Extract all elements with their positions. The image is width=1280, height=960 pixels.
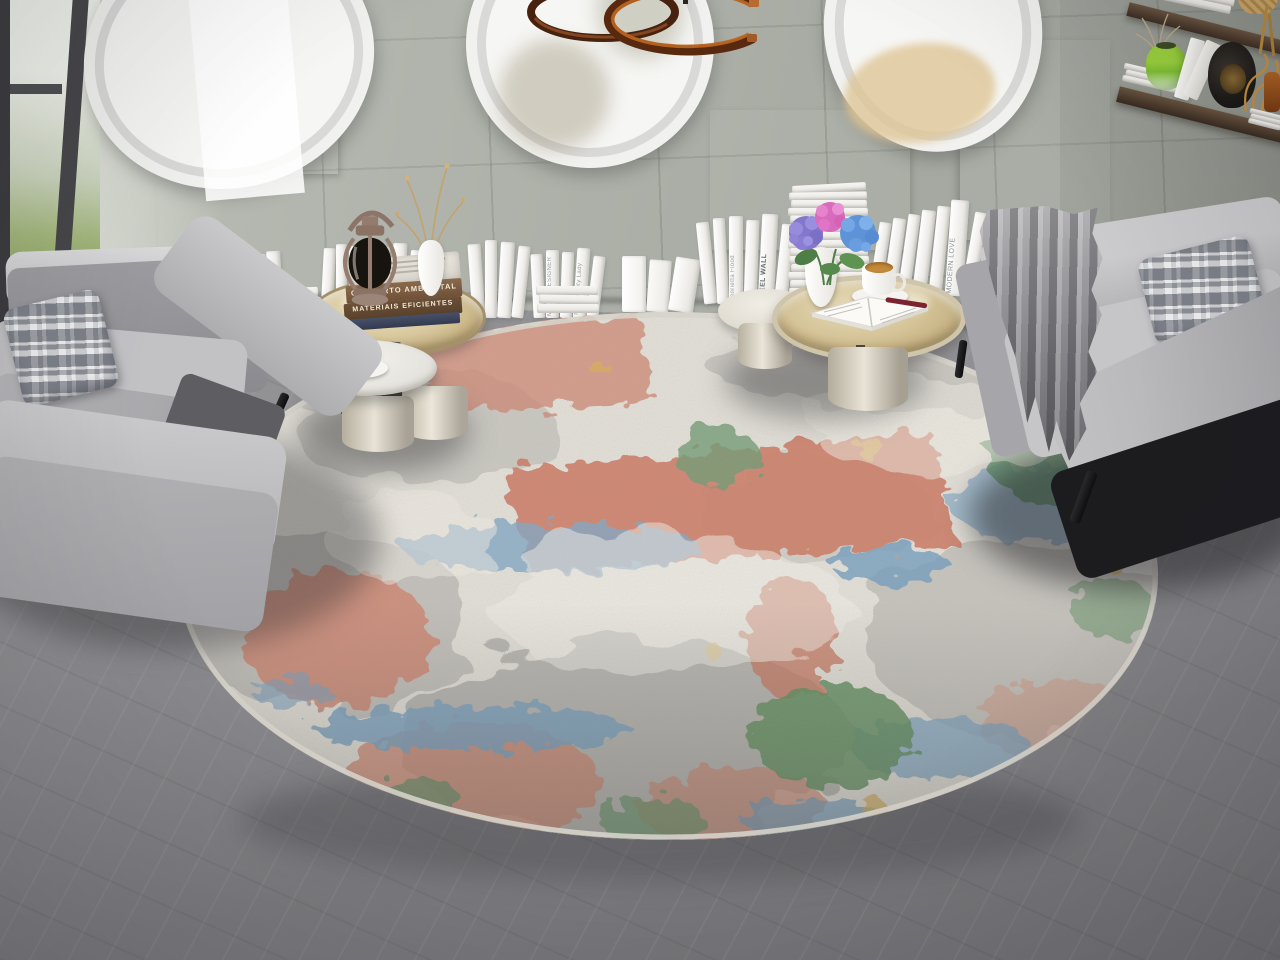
pendant-ring-walnut: [531, 0, 675, 38]
ring-pendant-light: [515, 0, 765, 64]
living-room-scene: FATALISM of YOURSELF Biological Prado Mo…: [0, 0, 1280, 960]
pendant-ring-copper-face: [613, 0, 751, 46]
sofa-leg: [954, 340, 967, 379]
teacup: [862, 265, 896, 295]
pendant-ring-end-cap: [749, 0, 759, 7]
book-spine-wide: [622, 256, 646, 312]
coffee-table-set-right: [710, 195, 975, 430]
book-row-e-boxes: [622, 250, 697, 312]
lantern-cap: [356, 225, 385, 235]
pendant-ring-open: [609, 0, 755, 50]
pendant-ring-end-cap: [747, 34, 757, 42]
lantern-chimney: [362, 216, 378, 226]
amber-bottle: [1264, 72, 1280, 112]
book-spine-wide: [668, 256, 701, 313]
armchair-front-left: [0, 378, 300, 638]
table-base-cylinder: [828, 347, 908, 411]
vase-mouth: [1156, 42, 1176, 49]
hydrangea-blue: [840, 215, 879, 252]
open-notebook: [810, 295, 930, 347]
pendant-stem: [683, 0, 688, 4]
leaf: [820, 263, 840, 275]
tea-surface: [865, 262, 893, 273]
sofa-right: [945, 190, 1280, 590]
